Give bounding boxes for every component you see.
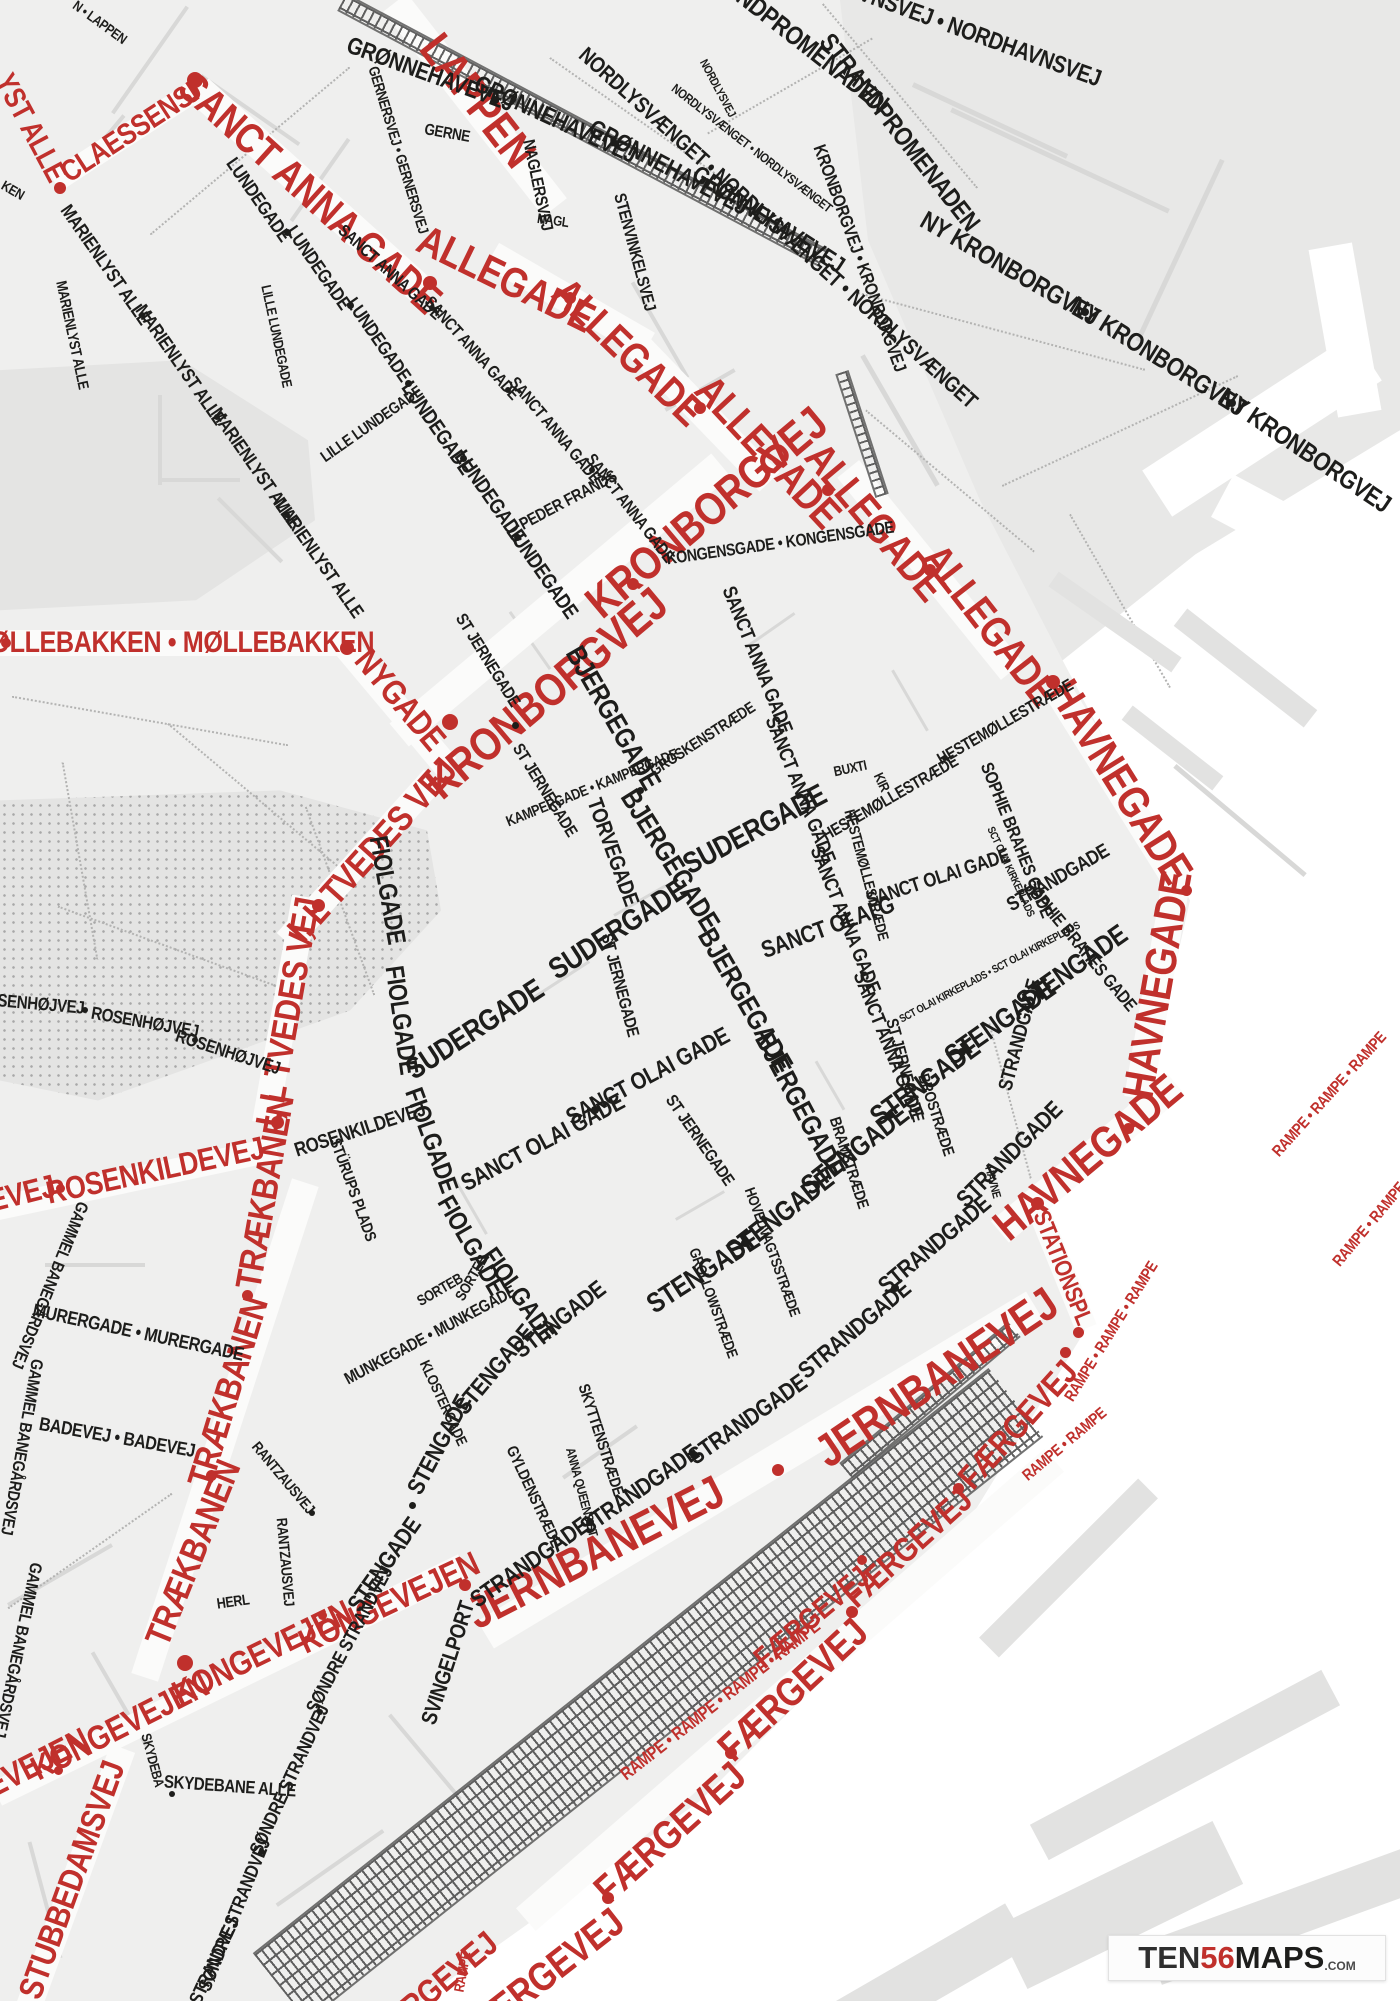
junction-dot xyxy=(857,1555,867,1565)
road-line xyxy=(815,1060,846,1110)
junction-dot xyxy=(924,564,936,576)
street-label: GAMMEL BANEGÅRDSVEJ xyxy=(0,1358,46,1536)
street-label: STUBBEDAMSVEJ xyxy=(13,1757,130,2001)
junction-dot xyxy=(340,641,354,655)
junction-dot xyxy=(627,578,639,590)
logo-maps: MAPS xyxy=(1235,1940,1325,1976)
street-label: BADEVEJ • BADEVEJ xyxy=(37,1415,196,1461)
street-label: GROSKENSTRÆDE xyxy=(648,700,759,780)
junction-dot xyxy=(54,182,66,194)
junction-dot xyxy=(690,1451,698,1459)
junction-dot xyxy=(612,140,619,147)
junction-dot xyxy=(271,1116,284,1129)
street-label: STRANDGADE xyxy=(874,1191,995,1298)
junction-dot xyxy=(318,1611,327,1620)
junction-dot xyxy=(942,755,948,761)
street-label: MØLLEBAKKEN • MØLLEBAKKEN xyxy=(0,628,374,658)
street-label: GERNERSVEJ • GERNERSVEJ xyxy=(365,65,430,236)
junction-dot xyxy=(586,1518,594,1526)
junction-dot xyxy=(1123,1123,1134,1134)
junction-dot xyxy=(715,190,722,197)
junction-dot xyxy=(741,1239,749,1247)
junction-dot xyxy=(54,1766,63,1775)
junction-dot xyxy=(405,380,412,387)
street-label: RANTZAUSVEJ xyxy=(274,1517,297,1606)
junction-dot xyxy=(1046,675,1060,689)
road-line xyxy=(160,478,240,482)
junction-dot xyxy=(512,722,519,729)
road-line xyxy=(675,1190,725,1221)
street-label: NAGL xyxy=(536,211,569,229)
junction-dot xyxy=(347,302,354,309)
junction-dot xyxy=(206,1470,217,1481)
road-line xyxy=(388,1714,462,1801)
junction-dot xyxy=(56,1184,65,1193)
junction-dot xyxy=(637,787,644,794)
junction-dot xyxy=(317,1709,323,1715)
ten56maps-logo: TEN56MAPS.COM xyxy=(1108,1935,1386,1981)
street-label: STÜRUPS PLADS xyxy=(326,1136,378,1243)
junction-dot xyxy=(192,1037,198,1043)
junction-dot xyxy=(214,414,220,420)
junction-dot xyxy=(886,1111,894,1119)
street-label: N • LAPPEN xyxy=(71,0,130,46)
street-label: MURERGADE • MURERGADE xyxy=(31,1301,245,1364)
street-label: GAMMEL BANEGÅRDSVEJ xyxy=(9,1199,92,1371)
street-label: SANCT OLAI GADE xyxy=(563,1024,734,1130)
junction-dot xyxy=(169,1791,175,1797)
junction-dot xyxy=(1181,885,1192,896)
junction-dot xyxy=(242,1290,253,1301)
junction-dot xyxy=(694,402,706,414)
street-label: KEN xyxy=(0,178,27,202)
street-label: SANCT OLAI GADE xyxy=(864,845,1012,910)
street-label: ROSENKILDEVEJ xyxy=(43,1131,266,1208)
junction-dot xyxy=(822,484,834,496)
junction-dot xyxy=(891,1284,899,1292)
junction-dot xyxy=(958,1048,966,1056)
street-label: FIOLGADE xyxy=(382,964,423,1076)
junction-dot xyxy=(1073,1327,1084,1338)
junction-dot xyxy=(1060,1347,1071,1358)
junction-dot xyxy=(1031,1197,1044,1210)
street-label: GERNE xyxy=(423,122,471,146)
street-label: PEDER FRANDS xyxy=(516,467,619,533)
logo-56: 56 xyxy=(1200,1940,1234,1976)
junction-dot xyxy=(564,292,576,304)
junction-dot xyxy=(177,1655,193,1671)
junction-dot xyxy=(459,1579,471,1591)
junction-dot xyxy=(772,1464,784,1476)
junction-dot xyxy=(82,1007,88,1013)
map-canvas: LAPPENCLAESSENSISANCT ANNA GADEYST ALLEM… xyxy=(0,0,1400,2001)
junction-dot xyxy=(187,72,203,88)
street-label: ST JERNEGADE xyxy=(663,1092,738,1189)
logo-com: .COM xyxy=(1324,1959,1355,1973)
junction-dot xyxy=(423,276,437,290)
junction-dot xyxy=(259,1849,265,1855)
junction-dot xyxy=(460,455,467,462)
logo-ten: TEN xyxy=(1138,1940,1200,1976)
junction-dot xyxy=(284,512,290,518)
junction-dot xyxy=(505,387,511,393)
street-label: ROSENKILDEVEJ xyxy=(292,1099,428,1160)
street-label: SVINGELPORT xyxy=(418,1599,478,1727)
junction-dot xyxy=(1228,399,1236,407)
junction-dot xyxy=(591,1106,599,1114)
junction-dot xyxy=(953,1483,964,1494)
street-label: LILLE LUNDEGADE xyxy=(259,284,294,389)
junction-dot xyxy=(442,714,458,730)
footpath-dotted xyxy=(12,696,288,747)
street-label: RANTZAUSVEJ xyxy=(249,1439,317,1516)
junction-dot xyxy=(602,1892,614,1904)
junction-dot xyxy=(284,229,291,236)
road-line xyxy=(891,669,929,731)
junction-dot xyxy=(429,305,435,311)
junction-dot xyxy=(492,97,499,104)
junction-dot xyxy=(312,899,325,912)
street-label: GAMMEL BANEGÅRDSVEJ xyxy=(0,1561,45,1739)
street-label: STENVINKELSVEJ xyxy=(611,191,659,312)
street-label: BUXTI xyxy=(832,758,867,779)
junction-dot xyxy=(846,1606,858,1618)
street-label: SØNDRE STRANDVEJ xyxy=(157,1915,243,2001)
junction-dot xyxy=(514,534,521,541)
street-label: SKYDEBA xyxy=(139,1732,167,1788)
street-label: YST ALLE xyxy=(0,69,71,187)
junction-dot xyxy=(589,467,595,473)
road-line xyxy=(158,395,162,485)
junction-dot xyxy=(1081,308,1089,316)
junction-dot xyxy=(409,1502,416,1509)
street-label: HERL xyxy=(216,1592,250,1611)
junction-dot xyxy=(309,1510,315,1516)
junction-dot xyxy=(1,638,11,648)
junction-dot xyxy=(139,312,145,318)
junction-dot xyxy=(725,1747,737,1759)
